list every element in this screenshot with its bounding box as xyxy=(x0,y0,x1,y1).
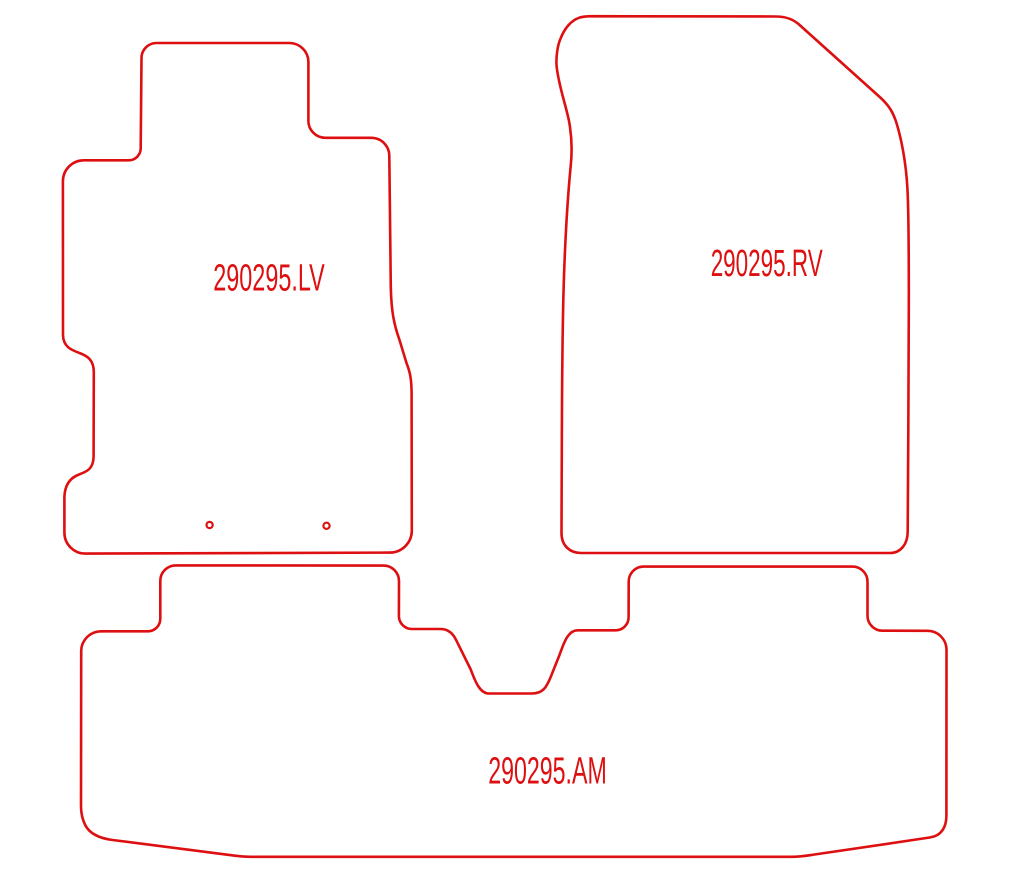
svg-text:290295.LV: 290295.LV xyxy=(213,258,325,300)
svg-text:290295.RV: 290295.RV xyxy=(711,243,823,285)
svg-text:290295.AM: 290295.AM xyxy=(488,750,607,792)
